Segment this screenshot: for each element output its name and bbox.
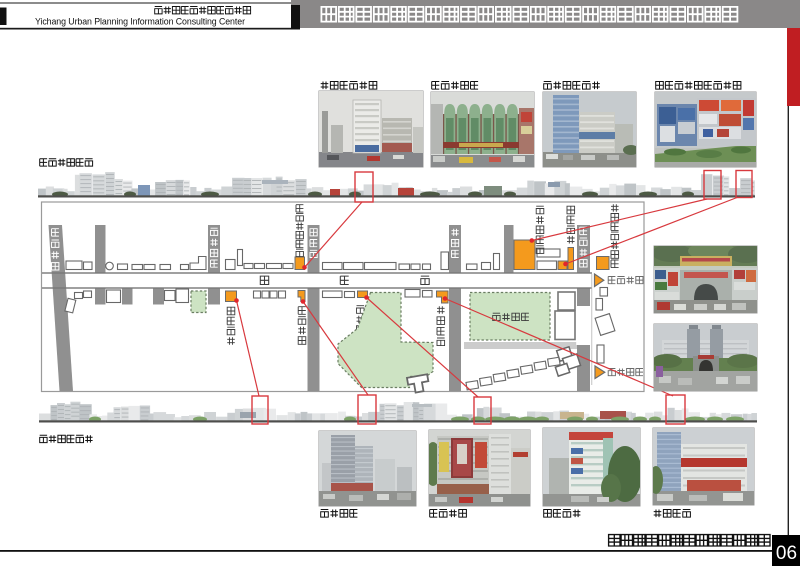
svg-text:Yichang Urban Planning Informa: Yichang Urban Planning Information Consu… — [35, 16, 245, 26]
svg-text:06: 06 — [776, 543, 797, 564]
